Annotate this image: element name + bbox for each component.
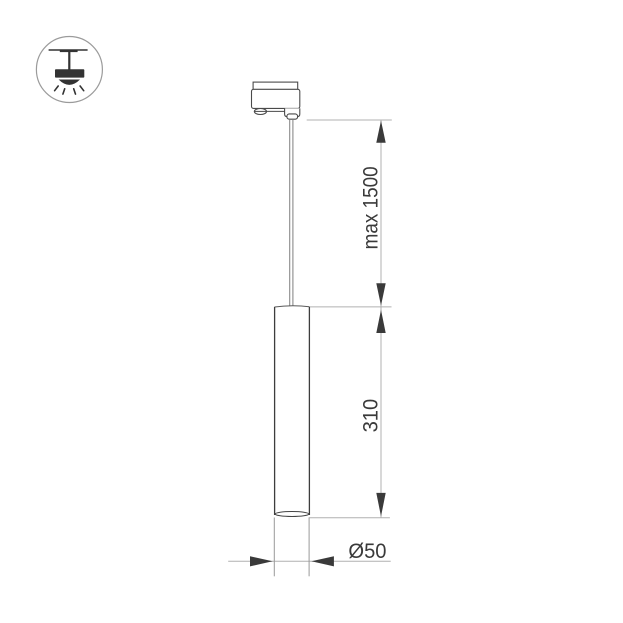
svg-text:310: 310 [359, 399, 382, 433]
svg-text:max 1500: max 1500 [359, 166, 382, 249]
svg-text:Ø50: Ø50 [348, 539, 386, 562]
